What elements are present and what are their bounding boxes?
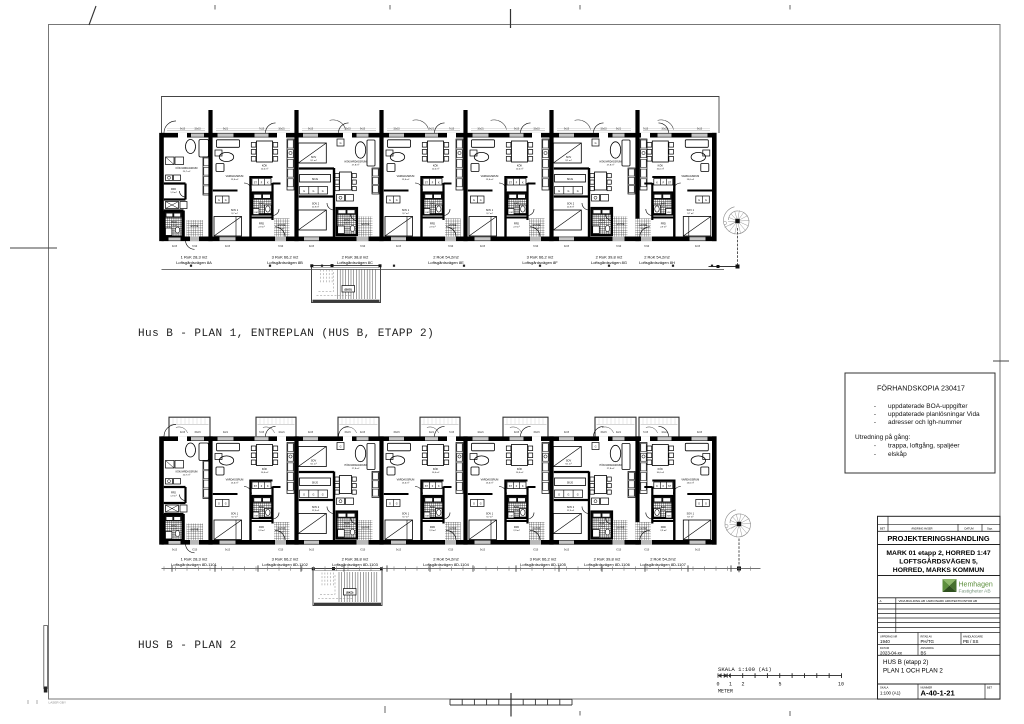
svg-text:Y210: Y210: [533, 246, 539, 248]
svg-text:Y210: Y210: [616, 550, 622, 552]
svg-text:7x15: 7x15: [643, 129, 649, 131]
svg-text:10,0 m²: 10,0 m²: [657, 471, 665, 474]
svg-text:2,9 m²: 2,9 m²: [513, 529, 519, 532]
svg-text:9x15: 9x15: [225, 246, 231, 248]
svg-text:A: A: [880, 599, 882, 603]
svg-text:9,7 m²: 9,7 m²: [231, 212, 237, 215]
svg-text:9,1 m²: 9,1 m²: [310, 463, 316, 466]
svg-text:BAD: BAD: [514, 506, 519, 509]
svg-text:4,9 m²: 4,9 m²: [344, 525, 350, 528]
svg-text:SOV: SOV: [311, 156, 317, 159]
svg-text:VARDAGSRUM: VARDAGSRUM: [226, 175, 244, 178]
svg-text:HÖK/VARDAGSRUM: HÖK/VARDAGSRUM: [600, 161, 622, 164]
svg-text:G: G: [340, 446, 342, 449]
svg-text:9x15: 9x15: [514, 129, 520, 131]
svg-text:ST: ST: [509, 181, 513, 184]
svg-text:G: G: [218, 199, 220, 202]
svg-text:1 RoK 28,3 m2: 1 RoK 28,3 m2: [181, 255, 208, 260]
svg-text:11,9 m²: 11,9 m²: [567, 206, 575, 209]
svg-text:ENTRÉ: ENTRÉ: [533, 528, 541, 531]
svg-text:Hus B - PLAN 1, ENTREPLAN (HUS: Hus B - PLAN 1, ENTREPLAN (HUS B, ETAPP …: [138, 328, 434, 340]
svg-text:ENTRÉ: ENTRÉ: [278, 528, 286, 531]
svg-text:G: G: [567, 190, 569, 193]
svg-text:1,9 m²: 1,9 m²: [170, 191, 176, 194]
svg-text:RITAD AV: RITAD AV: [921, 634, 933, 638]
svg-text:FRD: FRD: [259, 526, 264, 529]
svg-text:9x15: 9x15: [360, 432, 366, 434]
svg-text:2 RoK 39,8 m2: 2 RoK 39,8 m2: [596, 255, 623, 260]
svg-text:Sign.: Sign.: [987, 526, 993, 530]
svg-text:13,6 m²: 13,6 m²: [231, 482, 239, 485]
svg-text:VARDAGSRUM: VARDAGSRUM: [481, 479, 499, 482]
svg-text:G: G: [558, 494, 560, 497]
svg-text:FRD: FRD: [514, 526, 519, 529]
svg-text:PROJEKTERINGSHANDLING: PROJEKTERINGSHANDLING: [887, 534, 989, 543]
svg-text:15x15: 15x15: [533, 432, 540, 434]
svg-text:0: 0: [716, 682, 719, 688]
svg-text:13,6 m²: 13,6 m²: [687, 178, 695, 181]
svg-text:9x21: 9x21: [429, 432, 435, 434]
svg-text:4,9 m²: 4,9 m²: [429, 509, 435, 512]
svg-text:ENTRÉ: ENTRÉ: [191, 529, 199, 532]
svg-text:15x15: 15x15: [533, 129, 540, 131]
svg-text:9x15: 9x15: [695, 550, 701, 552]
svg-text:SOV 2: SOV 2: [312, 506, 320, 509]
svg-text:9x21: 9x21: [223, 129, 229, 131]
svg-text:BS: BS: [921, 650, 927, 655]
svg-text:15x15: 15x15: [393, 129, 400, 131]
svg-text:4,9 m²: 4,9 m²: [599, 222, 605, 225]
svg-text:KM: KM: [509, 212, 512, 214]
svg-text:KM: KM: [667, 212, 670, 214]
svg-text:ENTRÉ: ENTRÉ: [617, 527, 625, 530]
svg-text:Hemhagen: Hemhagen: [959, 582, 993, 589]
svg-text:SOV 1: SOV 1: [687, 209, 695, 212]
svg-text:ST: ST: [254, 181, 258, 184]
svg-text:ST: ST: [425, 485, 429, 488]
svg-text:PH/TG: PH/TG: [921, 639, 935, 644]
svg-text:ENTRÉ: ENTRÉ: [617, 223, 625, 226]
svg-text:ST: ST: [668, 181, 672, 184]
svg-text:ENTRÉ: ENTRÉ: [533, 224, 541, 227]
svg-text:15x15: 15x15: [600, 129, 607, 131]
svg-text:5: 5: [778, 682, 781, 688]
svg-text:Loftsgårdsvägen 8D-1105: Loftsgårdsvägen 8D-1105: [520, 562, 567, 567]
svg-text:KÖK: KÖK: [517, 165, 523, 168]
svg-text:9x15: 9x15: [172, 246, 178, 248]
svg-text:11,9 m²: 11,9 m²: [312, 509, 320, 512]
svg-text:3 RoK 66,2 m2: 3 RoK 66,2 m2: [527, 255, 554, 260]
svg-text:HÖK/VARDAGSRUM: HÖK/VARDAGSRUM: [345, 161, 367, 164]
svg-text:G: G: [473, 199, 475, 202]
svg-text:BAD: BAD: [259, 506, 264, 509]
svg-text:ENTRÉ: ENTRÉ: [362, 527, 370, 530]
svg-text:ST: ST: [509, 485, 513, 488]
svg-text:4,9 m²: 4,9 m²: [258, 509, 264, 512]
svg-text:2 RoK 54,2m2: 2 RoK 54,2m2: [433, 556, 459, 561]
svg-text:2,9 m²: 2,9 m²: [429, 529, 435, 532]
svg-text:ANSVARIG: ANSVARIG: [921, 646, 934, 650]
svg-text:G: G: [312, 190, 314, 193]
svg-text:KÖK: KÖK: [658, 468, 664, 471]
svg-text:9x15: 9x15: [172, 550, 178, 552]
svg-text:9,7 m²: 9,7 m²: [687, 516, 693, 519]
svg-text:ÄNDRING AVSER: ÄNDRING AVSER: [911, 526, 932, 530]
svg-text:G: G: [322, 190, 324, 193]
svg-text:Y210: Y210: [533, 550, 539, 552]
svg-text:2: 2: [741, 682, 744, 688]
svg-text:BAD: BAD: [430, 203, 435, 206]
svg-text:FRD: FRD: [661, 223, 666, 226]
svg-text:4,6 m²: 4,6 m²: [171, 528, 177, 531]
svg-text:KM: KM: [254, 212, 257, 214]
svg-text:DATUM: DATUM: [964, 526, 973, 530]
svg-text:4,9 m²: 4,9 m²: [660, 206, 666, 209]
svg-text:G: G: [698, 199, 700, 202]
svg-text:2,9 m²: 2,9 m²: [513, 226, 519, 229]
svg-text:9x15: 9x15: [180, 432, 186, 434]
svg-text:9x21: 9x21: [429, 129, 435, 131]
svg-text:9,1 m²: 9,1 m²: [565, 159, 571, 162]
svg-text:G: G: [558, 190, 560, 193]
svg-text:9,7 m²: 9,7 m²: [687, 212, 693, 215]
svg-text:4,9 m²: 4,9 m²: [513, 509, 519, 512]
svg-text:13,6 m²: 13,6 m²: [687, 482, 695, 485]
svg-text:3 RoK 66,2 m2: 3 RoK 66,2 m2: [530, 556, 557, 561]
svg-text:9x15: 9x15: [697, 129, 703, 131]
svg-text:2 RoK 54,2m2: 2 RoK 54,2m2: [433, 255, 459, 260]
svg-text:BAD: BAD: [599, 219, 604, 222]
svg-text:BAD: BAD: [599, 522, 604, 525]
svg-text:2 RoK 38,8 m2: 2 RoK 38,8 m2: [342, 556, 369, 561]
svg-text:Loftsgårdsvägen 8F: Loftsgårdsvägen 8F: [522, 260, 558, 265]
svg-text:9x15: 9x15: [564, 129, 570, 131]
svg-text:SKJG: SKJG: [312, 481, 318, 484]
svg-text:10x21: 10x21: [661, 432, 668, 434]
svg-text:ENTRÉ: ENTRÉ: [449, 224, 457, 227]
svg-text:Y210: Y210: [644, 550, 650, 552]
svg-text:G: G: [303, 190, 305, 193]
svg-text:KÖK/VARDAGSRUM: KÖK/VARDAGSRUM: [176, 471, 198, 474]
svg-text:10: 10: [838, 682, 844, 688]
svg-text:4,6 m²: 4,6 m²: [171, 224, 177, 227]
svg-text:4,9 m²: 4,9 m²: [513, 206, 519, 209]
svg-text:Loftsgårdsvägen 8H: Loftsgårdsvägen 8H: [639, 260, 675, 265]
svg-text:10,0 m²: 10,0 m²: [261, 471, 269, 474]
svg-text:9x15: 9x15: [308, 129, 314, 131]
svg-text:FRD: FRD: [430, 526, 435, 529]
svg-text:15x15: 15x15: [344, 129, 351, 131]
svg-text:FRD: FRD: [259, 223, 264, 226]
svg-text:2 RoK 39,8 m2: 2 RoK 39,8 m2: [594, 556, 621, 561]
svg-text:9,7 m²: 9,7 m²: [486, 516, 492, 519]
svg-text:15x15: 15x15: [600, 432, 607, 434]
svg-text:1: 1: [729, 682, 732, 688]
svg-text:DATUM: DATUM: [880, 646, 889, 650]
svg-text:uppdaterade planlösningar Vida: uppdaterade planlösningar Vida: [888, 411, 980, 418]
svg-text:15x15: 15x15: [393, 432, 400, 434]
svg-text:HÖK/VARDAGSRUM: HÖK/VARDAGSRUM: [345, 464, 367, 467]
svg-text:VARDAGSRUM: VARDAGSRUM: [481, 175, 499, 178]
svg-text:27,8 m²: 27,8 m²: [607, 467, 615, 470]
svg-text:SOV 1: SOV 1: [486, 209, 494, 212]
svg-text:BET: BET: [880, 526, 885, 530]
svg-text:KÖK: KÖK: [517, 468, 523, 471]
svg-text:3 RoK 66,2 m2: 3 RoK 66,2 m2: [272, 556, 299, 561]
svg-text:13,6 m²: 13,6 m²: [231, 178, 239, 181]
svg-text:7x15: 7x15: [449, 129, 455, 131]
svg-text:7x15: 7x15: [259, 432, 265, 434]
svg-text:G: G: [218, 503, 220, 506]
svg-text:9,7 m²: 9,7 m²: [231, 516, 237, 519]
svg-text:PB / SS: PB / SS: [963, 639, 978, 644]
svg-text:9x15: 9x15: [225, 550, 231, 552]
svg-text:HUS B (etapp 2): HUS B (etapp 2): [883, 659, 928, 666]
svg-text:G: G: [322, 494, 324, 497]
svg-text:9x15: 9x15: [695, 246, 701, 248]
svg-text:G: G: [705, 199, 707, 202]
svg-text:G: G: [595, 446, 597, 449]
svg-text:adresser och lgh-nummer: adresser och lgh-nummer: [888, 419, 963, 426]
svg-text:10,0 m²: 10,0 m²: [516, 168, 524, 171]
svg-text:SOV 1: SOV 1: [402, 513, 410, 516]
svg-text:9x15: 9x15: [480, 246, 486, 248]
svg-text:BAD: BAD: [430, 506, 435, 509]
svg-text:13,6 m²: 13,6 m²: [486, 482, 494, 485]
svg-text:10,0 m²: 10,0 m²: [432, 471, 440, 474]
svg-text:9x15: 9x15: [180, 129, 186, 131]
svg-text:Utredning på gång:: Utredning på gång:: [855, 433, 910, 441]
svg-text:27,8 m²: 27,8 m²: [352, 467, 360, 470]
svg-text:4,9 m²: 4,9 m²: [344, 222, 350, 225]
svg-text:(BKD): (BKD): [345, 287, 352, 291]
svg-text:SKJG: SKJG: [567, 178, 573, 181]
svg-text:KM: KM: [667, 516, 670, 518]
svg-text:KÖK: KÖK: [262, 468, 268, 471]
svg-text:G: G: [567, 494, 569, 497]
svg-text:G: G: [312, 494, 314, 497]
svg-text:Loftsgårdsvägen 8D-1102: Loftsgårdsvägen 8D-1102: [262, 562, 309, 567]
svg-text:10,0 m²: 10,0 m²: [432, 168, 440, 171]
svg-text:KM: KM: [425, 212, 428, 214]
svg-text:Y210: Y210: [448, 550, 454, 552]
svg-text:9,1 m²: 9,1 m²: [310, 159, 316, 162]
svg-text:LOFTSGÅRDSVÄGEN 5,: LOFTSGÅRDSVÄGEN 5,: [899, 557, 978, 566]
svg-text:G: G: [577, 190, 579, 193]
svg-text:Fastigheter AB: Fastigheter AB: [959, 588, 991, 594]
svg-text:FRD: FRD: [661, 526, 666, 529]
svg-text:9x15: 9x15: [564, 432, 570, 434]
svg-text:9x15: 9x15: [309, 550, 315, 552]
svg-text:SOV 1: SOV 1: [231, 209, 239, 212]
svg-text:9x15: 9x15: [396, 246, 402, 248]
svg-text:VARDAGSRUM: VARDAGSRUM: [397, 175, 415, 178]
svg-text:2,9 m²: 2,9 m²: [660, 226, 666, 229]
svg-text:Y210: Y210: [448, 246, 454, 248]
svg-text:9,7 m²: 9,7 m²: [402, 516, 408, 519]
svg-text:9x15: 9x15: [564, 550, 570, 552]
svg-text:uppdaterade BOA-uppgifter: uppdaterade BOA-uppgifter: [888, 403, 968, 410]
svg-text:HANDLÄGGARE: HANDLÄGGARE: [963, 634, 983, 638]
svg-text:ENTRÉ: ENTRÉ: [278, 224, 286, 227]
svg-text:1:100 (A1): 1:100 (A1): [880, 691, 901, 696]
svg-text:9x15: 9x15: [309, 246, 315, 248]
svg-text:BAD: BAD: [259, 203, 264, 206]
svg-text:G: G: [303, 494, 305, 497]
svg-text:2,9 m²: 2,9 m²: [258, 529, 264, 532]
svg-text:BAD: BAD: [172, 525, 177, 528]
svg-text:G: G: [396, 503, 398, 506]
svg-text:G: G: [389, 199, 391, 202]
svg-text:Y210: Y210: [278, 550, 284, 552]
svg-text:Y210: Y210: [616, 246, 622, 248]
svg-text:1940: 1940: [880, 639, 890, 644]
svg-text:SKJG: SKJG: [312, 178, 318, 181]
svg-text:11,9 m²: 11,9 m²: [567, 509, 575, 512]
svg-text:PLAN 1 OCH PLAN 2: PLAN 1 OCH PLAN 2: [883, 668, 943, 675]
svg-text:Loftsgårdsvägen 8D-1103: Loftsgårdsvägen 8D-1103: [332, 562, 379, 567]
svg-text:7x15: 7x15: [259, 129, 265, 131]
svg-text:1 RoK 28,3 m2: 1 RoK 28,3 m2: [181, 556, 208, 561]
svg-text:Loftsgårdsvägen 8D-1107: Loftsgårdsvägen 8D-1107: [640, 562, 687, 567]
svg-text:G: G: [389, 503, 391, 506]
svg-text:SKALA: SKALA: [880, 685, 889, 689]
svg-text:11,9 m²: 11,9 m²: [312, 206, 320, 209]
svg-text:ST: ST: [425, 181, 429, 184]
svg-text:KÖK: KÖK: [658, 165, 664, 168]
svg-text:SOV 1: SOV 1: [402, 209, 410, 212]
svg-text:SKJG: SKJG: [567, 481, 573, 484]
svg-text:Loftsgårdsvägen 8B: Loftsgårdsvägen 8B: [267, 260, 303, 265]
svg-text:KÖK: KÖK: [262, 165, 268, 168]
svg-text:BAD: BAD: [514, 203, 519, 206]
svg-text:FRD: FRD: [171, 492, 176, 495]
svg-text:KÖK: KÖK: [433, 468, 439, 471]
svg-text:UPPDRAG NR: UPPDRAG NR: [880, 634, 897, 638]
svg-text:FRD: FRD: [171, 188, 176, 191]
svg-text:FÖRHANDSKOPIA 230417: FÖRHANDSKOPIA 230417: [877, 384, 965, 393]
svg-text:4,9 m²: 4,9 m²: [429, 206, 435, 209]
svg-text:G: G: [225, 503, 227, 506]
svg-text:2 RoK 54,2m2: 2 RoK 54,2m2: [650, 556, 676, 561]
svg-text:9x21: 9x21: [223, 432, 229, 434]
svg-text:Loftsgårdsvägen 8A: Loftsgårdsvägen 8A: [176, 260, 212, 265]
svg-text:Y210: Y210: [192, 246, 198, 248]
svg-text:VIDA BUILDING AB I ARKONARK AR: VIDA BUILDING AB I ARKONARK ARKITEKTKONT…: [899, 599, 977, 603]
svg-text:VARDAGSRUM: VARDAGSRUM: [397, 479, 415, 482]
svg-text:LASER GBY: LASER GBY: [49, 701, 67, 705]
svg-text:SOV: SOV: [566, 460, 572, 463]
svg-text:ENTRÉ: ENTRÉ: [639, 224, 647, 227]
svg-text:9x21: 9x21: [616, 129, 622, 131]
svg-text:10x21: 10x21: [278, 432, 285, 434]
svg-text:Y210: Y210: [644, 246, 650, 248]
svg-text:2 RoK 38,8 m2: 2 RoK 38,8 m2: [342, 255, 369, 260]
svg-text:27,8 m²: 27,8 m²: [607, 164, 615, 167]
svg-text:9x21: 9x21: [616, 432, 622, 434]
svg-text:9x15: 9x15: [360, 129, 366, 131]
svg-text:2023-04-xx: 2023-04-xx: [880, 650, 903, 655]
svg-text:BAD: BAD: [344, 522, 349, 525]
svg-text:SOV: SOV: [566, 156, 572, 159]
svg-text:ENTRÉ: ENTRÉ: [449, 528, 457, 531]
svg-text:13,6 m²: 13,6 m²: [402, 178, 410, 181]
svg-text:9x15: 9x15: [480, 550, 486, 552]
svg-text:SOV 1: SOV 1: [486, 513, 494, 516]
svg-text:Y210: Y210: [192, 550, 198, 552]
svg-text:2 RoK 54,2m2: 2 RoK 54,2m2: [644, 255, 670, 260]
svg-text:27,8 m²: 27,8 m²: [352, 164, 360, 167]
svg-text:13,6 m²: 13,6 m²: [486, 178, 494, 181]
svg-text:KM: KM: [425, 516, 428, 518]
svg-text:10x21: 10x21: [477, 432, 484, 434]
svg-text:4,9 m²: 4,9 m²: [660, 509, 666, 512]
svg-text:VARDAGSRUM: VARDAGSRUM: [226, 479, 244, 482]
svg-text:13,6 m²: 13,6 m²: [402, 482, 410, 485]
svg-text:9,1 m²: 9,1 m²: [565, 463, 571, 466]
svg-text:BAD: BAD: [172, 221, 177, 224]
svg-text:9x15: 9x15: [697, 432, 703, 434]
svg-text:G: G: [698, 503, 700, 506]
svg-text:ST: ST: [254, 485, 258, 488]
svg-text:Y210: Y210: [360, 550, 366, 552]
svg-text:10x21: 10x21: [477, 129, 484, 131]
svg-text:G: G: [595, 142, 597, 145]
svg-text:15x15: 15x15: [194, 432, 201, 434]
svg-text:KM: KM: [509, 516, 512, 518]
svg-text:BAD: BAD: [344, 219, 349, 222]
svg-text:-: -: [874, 411, 876, 418]
svg-text:Loftsgårdsvägen 8G: Loftsgårdsvägen 8G: [591, 260, 627, 265]
svg-text:2,9 m²: 2,9 m²: [429, 226, 435, 229]
svg-text:BET: BET: [987, 685, 992, 689]
svg-text:-: -: [874, 451, 876, 458]
svg-text:G: G: [473, 503, 475, 506]
svg-text:HUS B - PLAN 2: HUS B - PLAN 2: [138, 640, 237, 652]
svg-text:SKALA 1:100 (A1): SKALA 1:100 (A1): [718, 666, 772, 673]
svg-text:9x15: 9x15: [514, 432, 520, 434]
svg-text:7x15: 7x15: [643, 432, 649, 434]
svg-text:ENTRÉ: ENTRÉ: [639, 528, 647, 531]
svg-text:1,9 m²: 1,9 m²: [170, 495, 176, 498]
svg-text:10,0 m²: 10,0 m²: [261, 168, 269, 171]
svg-text:G: G: [480, 503, 482, 506]
svg-text:9,7 m²: 9,7 m²: [402, 212, 408, 215]
svg-text:10,0 m²: 10,0 m²: [657, 168, 665, 171]
svg-text:9x15: 9x15: [396, 550, 402, 552]
svg-text:9x15: 9x15: [308, 432, 314, 434]
svg-text:BAD: BAD: [661, 506, 666, 509]
svg-text:-: -: [874, 419, 876, 426]
svg-text:20,7 m²: 20,7 m²: [183, 170, 191, 173]
svg-text:10x21: 10x21: [661, 129, 668, 131]
svg-text:9,7 m²: 9,7 m²: [486, 212, 492, 215]
svg-text:-: -: [874, 443, 876, 450]
svg-text:4,9 m²: 4,9 m²: [258, 206, 264, 209]
svg-text:G: G: [577, 494, 579, 497]
svg-text:Loftsgårdsvägen 8D-1101: Loftsgårdsvägen 8D-1101: [171, 562, 218, 567]
svg-text:3 RoK 66,2 m2: 3 RoK 66,2 m2: [272, 255, 299, 260]
svg-text:SOV 2: SOV 2: [567, 203, 575, 206]
svg-text:FRD: FRD: [514, 223, 519, 226]
svg-text:7x15: 7x15: [449, 432, 455, 434]
svg-text:KÖK: KÖK: [433, 165, 439, 168]
svg-text:G: G: [396, 199, 398, 202]
svg-text:ST: ST: [668, 485, 672, 488]
svg-text:4,9 m²: 4,9 m²: [599, 525, 605, 528]
svg-text:Y210: Y210: [360, 246, 366, 248]
svg-text:15x15: 15x15: [344, 432, 351, 434]
